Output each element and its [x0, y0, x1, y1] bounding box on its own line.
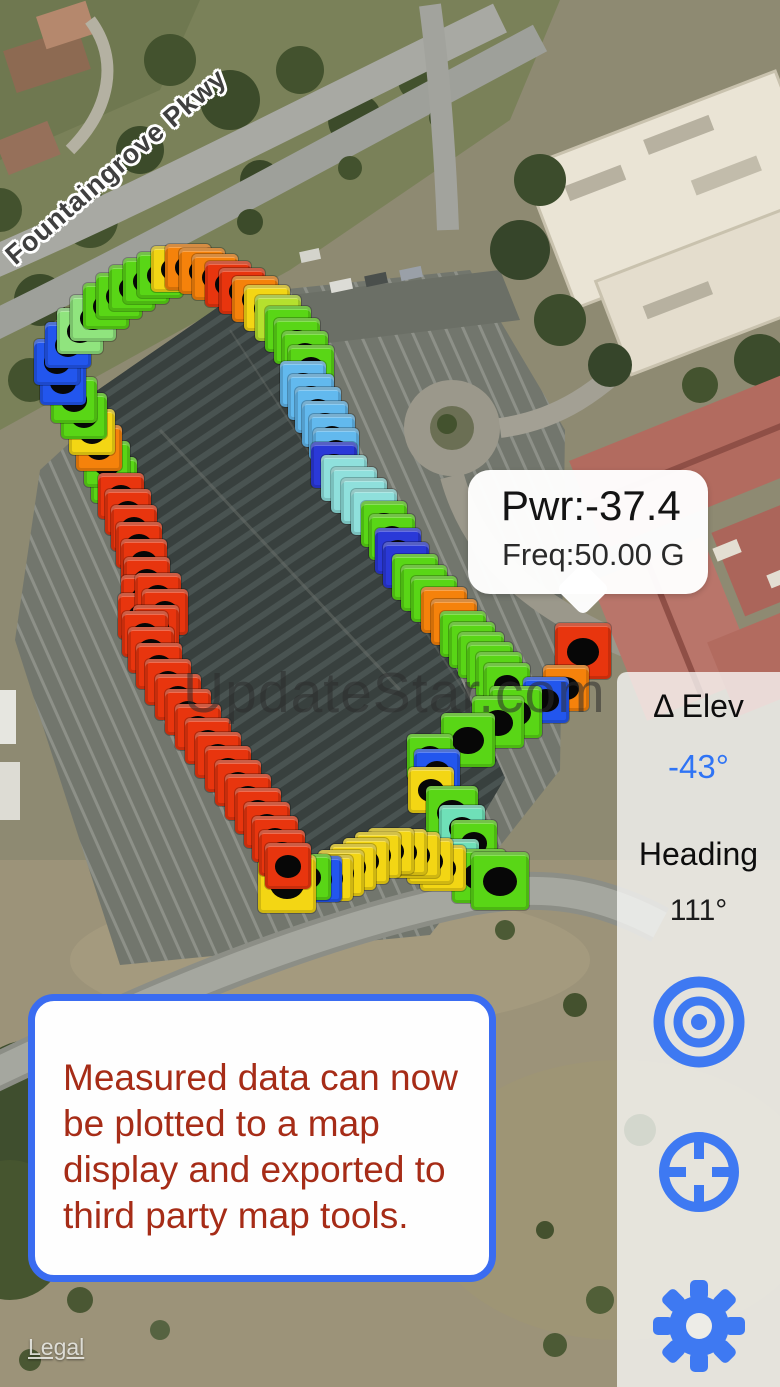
note-text: Measured data can now be plotted to a ma…: [63, 1055, 489, 1239]
crosshair-icon[interactable]: [654, 1127, 744, 1222]
gear-icon[interactable]: [651, 1278, 747, 1379]
watermark-text: UpdateStar.com: [183, 660, 606, 726]
power-value: Pwr:-37.4: [501, 485, 708, 527]
heading-value: 111°: [617, 894, 780, 928]
measurement-marker[interactable]: [265, 843, 311, 889]
instruction-note: Measured data can now be plotted to a ma…: [28, 994, 496, 1282]
delta-elev-value: -43°: [617, 748, 780, 786]
bullseye-icon[interactable]: [651, 974, 747, 1075]
marker-dot: [275, 855, 302, 878]
tool-panel: Δ Elev -43° Heading 111°: [617, 672, 780, 1387]
delta-elev-label: Δ Elev: [617, 688, 780, 725]
heading-label: Heading: [617, 836, 780, 873]
marker-dot: [483, 867, 517, 896]
measurement-callout[interactable]: Pwr:-37.4 Freq:50.00 G: [468, 470, 708, 594]
frequency-value: Freq:50.00 G: [502, 539, 708, 570]
legal-link[interactable]: Legal: [28, 1334, 84, 1361]
measurement-marker[interactable]: [471, 852, 529, 910]
map-measurement-app: { "map": { "road_label": "Fountaingrove …: [0, 0, 780, 1387]
